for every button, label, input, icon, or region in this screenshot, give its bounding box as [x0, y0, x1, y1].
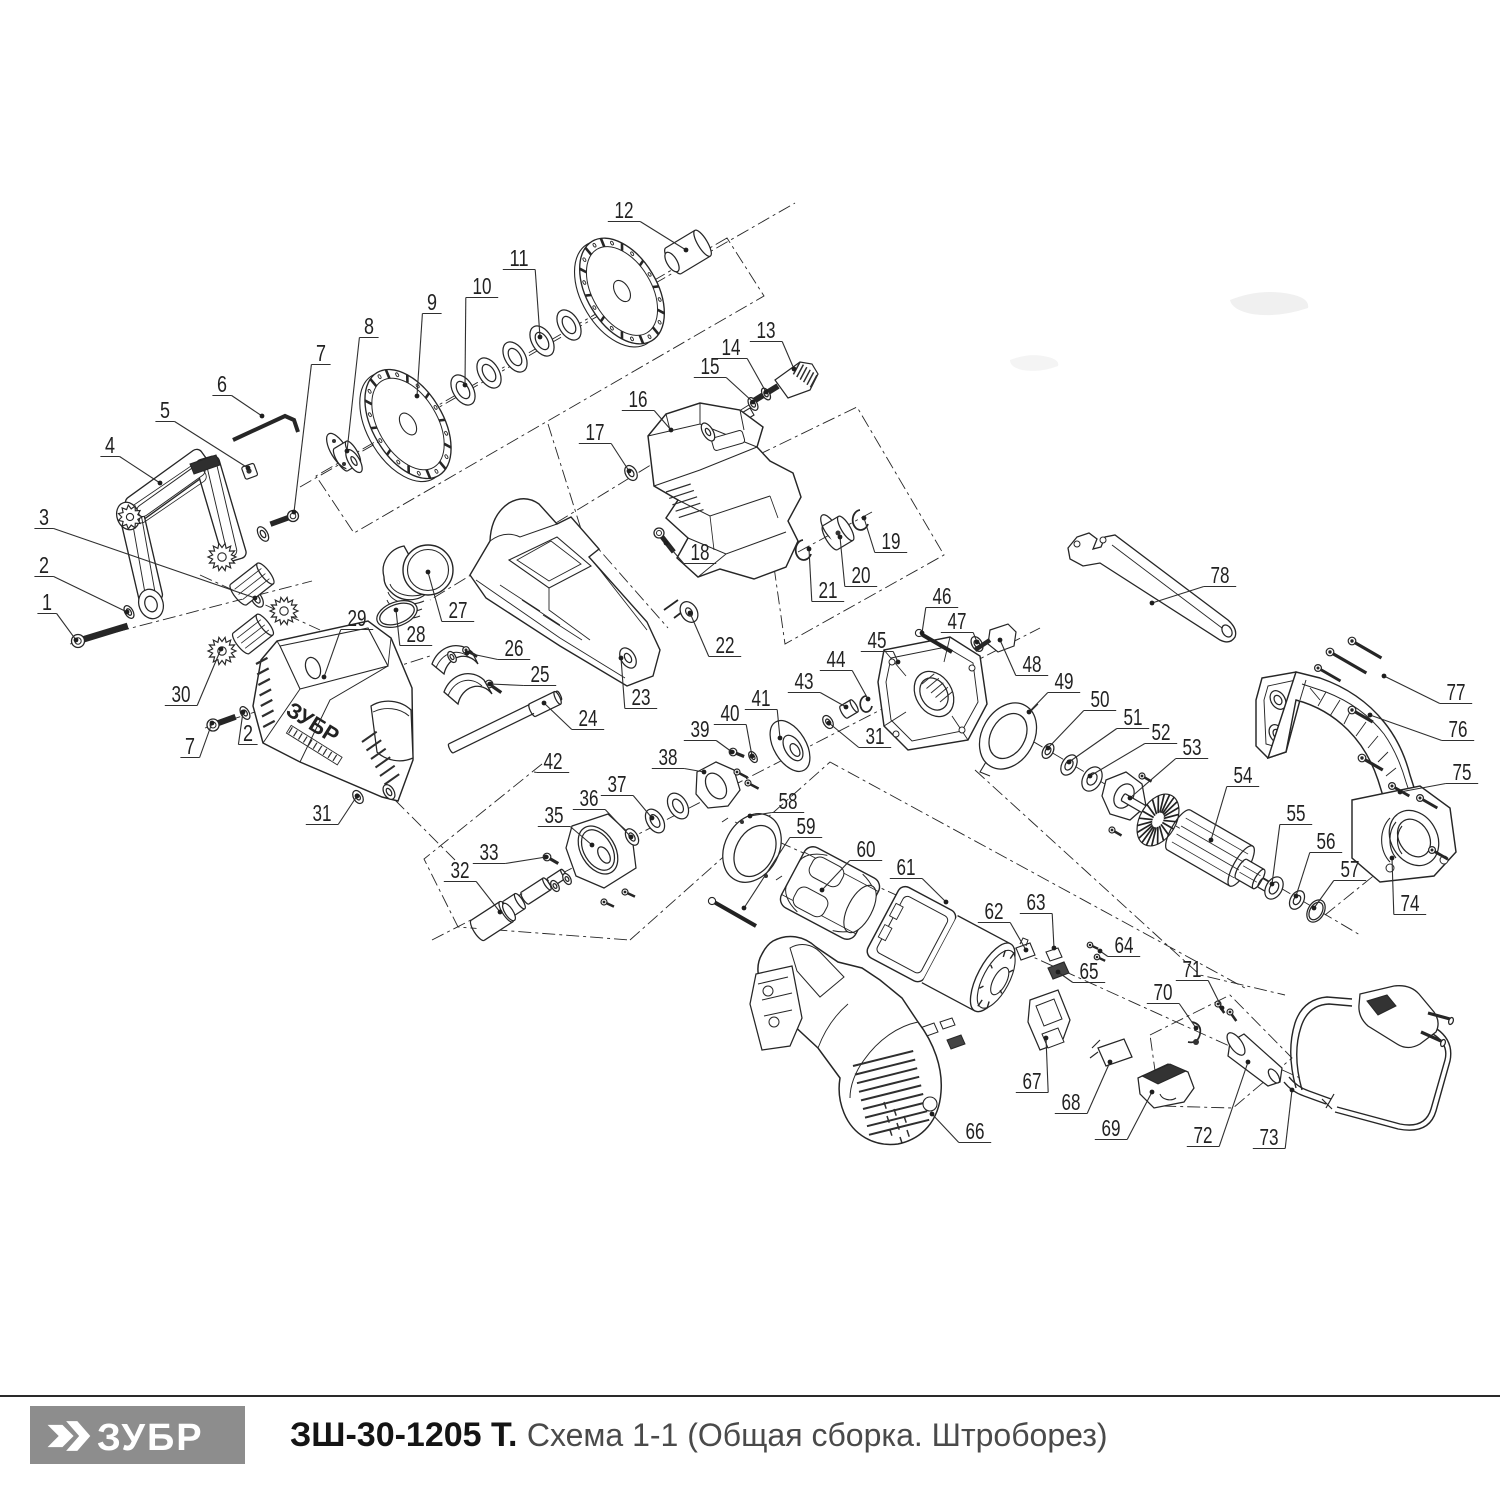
svg-text:45: 45 [868, 627, 887, 653]
svg-text:46: 46 [933, 583, 952, 609]
svg-text:37: 37 [608, 771, 627, 797]
svg-text:55: 55 [1287, 800, 1306, 826]
svg-text:39: 39 [691, 716, 710, 742]
svg-text:23: 23 [632, 684, 651, 710]
svg-text:1: 1 [42, 589, 52, 615]
svg-text:12: 12 [615, 197, 634, 223]
svg-text:57: 57 [1341, 856, 1360, 882]
svg-text:61: 61 [897, 854, 916, 880]
svg-text:30: 30 [172, 681, 191, 707]
svg-text:52: 52 [1152, 719, 1171, 745]
svg-text:62: 62 [985, 898, 1004, 924]
svg-text:27: 27 [449, 597, 468, 623]
svg-text:18: 18 [691, 539, 710, 565]
svg-text:49: 49 [1055, 668, 1074, 694]
svg-text:78: 78 [1211, 562, 1230, 588]
svg-text:3: 3 [39, 504, 49, 530]
svg-text:26: 26 [505, 635, 524, 661]
svg-text:70: 70 [1154, 979, 1173, 1005]
svg-text:67: 67 [1023, 1068, 1042, 1094]
svg-text:31: 31 [866, 723, 885, 749]
svg-text:38: 38 [659, 744, 678, 770]
svg-text:6: 6 [217, 371, 227, 397]
svg-text:48: 48 [1023, 651, 1042, 677]
svg-text:63: 63 [1027, 889, 1046, 915]
svg-text:29: 29 [348, 605, 367, 631]
svg-text:19: 19 [882, 528, 901, 554]
svg-text:77: 77 [1447, 679, 1466, 705]
svg-text:7: 7 [316, 340, 326, 366]
svg-text:14: 14 [722, 334, 741, 360]
svg-text:50: 50 [1091, 686, 1110, 712]
svg-text:58: 58 [779, 788, 798, 814]
svg-text:54: 54 [1234, 762, 1253, 788]
svg-text:13: 13 [757, 317, 776, 343]
svg-text:8: 8 [364, 313, 374, 339]
svg-text:5: 5 [160, 397, 170, 423]
svg-text:60: 60 [857, 836, 876, 862]
svg-text:53: 53 [1183, 734, 1202, 760]
svg-text:21: 21 [819, 577, 838, 603]
svg-text:51: 51 [1124, 704, 1143, 730]
svg-text:69: 69 [1102, 1115, 1121, 1141]
svg-text:64: 64 [1115, 932, 1134, 958]
svg-text:2: 2 [243, 720, 253, 746]
svg-text:75: 75 [1453, 759, 1472, 785]
svg-text:24: 24 [579, 705, 598, 731]
svg-text:22: 22 [716, 632, 735, 658]
svg-text:20: 20 [852, 562, 871, 588]
svg-text:31: 31 [313, 800, 332, 826]
svg-text:47: 47 [948, 608, 967, 634]
svg-text:4: 4 [105, 432, 115, 458]
svg-text:11: 11 [510, 245, 529, 271]
svg-text:10: 10 [473, 273, 492, 299]
svg-text:33: 33 [480, 839, 499, 865]
svg-text:40: 40 [721, 700, 740, 726]
svg-text:16: 16 [629, 386, 648, 412]
svg-text:41: 41 [752, 685, 771, 711]
svg-text:66: 66 [966, 1118, 985, 1144]
svg-text:65: 65 [1080, 958, 1099, 984]
svg-text:71: 71 [1183, 956, 1202, 982]
svg-text:32: 32 [451, 857, 470, 883]
svg-text:2: 2 [39, 552, 49, 578]
svg-text:43: 43 [795, 668, 814, 694]
svg-text:9: 9 [427, 289, 437, 315]
svg-text:44: 44 [827, 646, 846, 672]
svg-text:74: 74 [1401, 890, 1420, 916]
svg-text:72: 72 [1194, 1122, 1213, 1148]
svg-text:76: 76 [1449, 716, 1468, 742]
svg-text:73: 73 [1260, 1124, 1279, 1150]
svg-text:25: 25 [531, 661, 550, 687]
svg-text:17: 17 [586, 419, 605, 445]
svg-text:28: 28 [407, 621, 426, 647]
svg-text:59: 59 [797, 813, 816, 839]
svg-text:15: 15 [701, 353, 720, 379]
svg-text:42: 42 [544, 748, 563, 774]
svg-text:7: 7 [185, 733, 195, 759]
svg-text:56: 56 [1317, 828, 1336, 854]
svg-text:68: 68 [1062, 1089, 1081, 1115]
svg-text:36: 36 [580, 785, 599, 811]
svg-text:35: 35 [545, 802, 564, 828]
